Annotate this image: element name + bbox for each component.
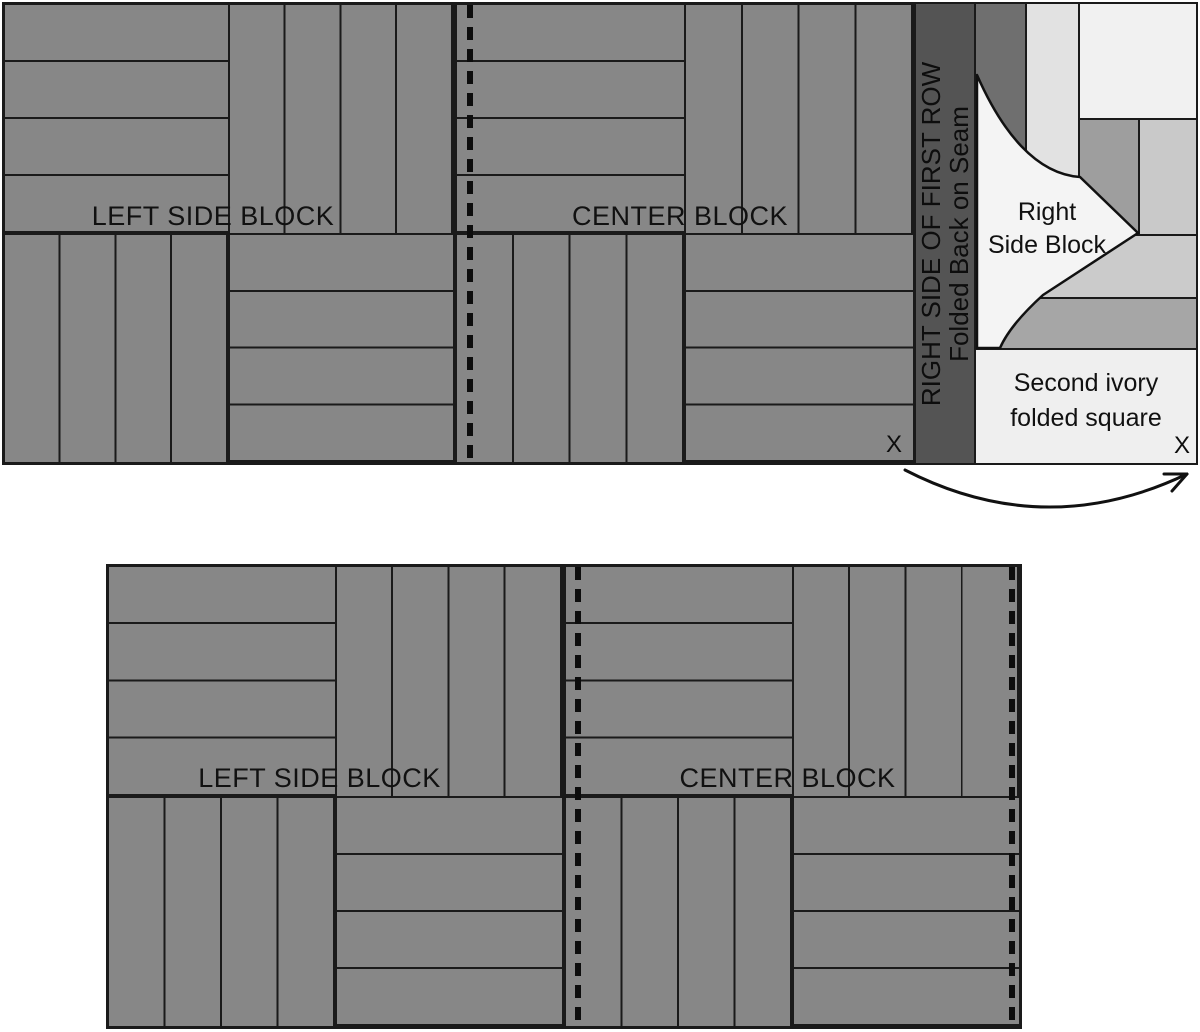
quadrant-vertical-strips [457,235,684,463]
folded-strip-caption: RIGHT SIDE OF FIRST ROW Folded Back on S… [917,61,973,405]
quadrant-vertical-strips [566,798,792,1027]
second-ivory-label-line2: folded square [974,401,1198,436]
bottom-center-block: CENTER BLOCK [563,564,1022,1029]
quadrant-vertical-strips [794,567,1020,796]
block-label: LEFT SIDE BLOCK [198,763,441,794]
quadrant-vertical-strips [337,567,563,796]
second-ivory-square-label: Second ivory folded square [974,366,1198,436]
top-center-block: CENTER BLOCK X [454,2,916,465]
seam-dashed-line-left [575,567,581,1026]
seam-dashed-line [467,5,473,462]
top-left-side-block: LEFT SIDE BLOCK [2,2,456,465]
fold-back-curve [974,2,1198,350]
seam-match-x-mark: X [886,431,902,459]
quadrant-vertical-strips [5,235,228,463]
quadrant-horizontal-strips [5,5,228,233]
seam-dashed-line-right [1009,567,1015,1026]
quadrant-horizontal-strips [566,567,792,796]
block-label: CENTER BLOCK [679,763,895,794]
folded-strip-caption-line1: RIGHT SIDE OF FIRST ROW [917,61,945,405]
quilt-assembly-diagram: LEFT SIDE BLOCK CENTER BLOCK X RIGHT SID… [0,0,1200,1032]
right-side-block-label-line2: Side Block [976,229,1118,262]
fold-target-x-mark: X [1174,432,1190,460]
block-label: CENTER BLOCK [572,201,788,232]
quadrant-vertical-strips [230,5,453,233]
folded-strip-caption-line2: Folded Back on Seam [945,61,973,405]
quadrant-horizontal-strips [230,235,453,463]
quadrant-vertical-strips [109,798,335,1027]
bottom-left-side-block: LEFT SIDE BLOCK [106,564,565,1029]
quadrant-horizontal-strips [794,798,1020,1027]
quadrant-horizontal-strips [109,567,335,796]
quadrant-vertical-strips [686,5,913,233]
fold-direction-arrow [895,460,1200,535]
quadrant-horizontal-strips [457,5,684,233]
right-side-block-label-line1: Right [976,196,1118,229]
block-label: LEFT SIDE BLOCK [92,201,335,232]
quadrant-horizontal-strips [337,798,563,1027]
quadrant-horizontal-strips [686,235,913,463]
right-side-block-label: Right Side Block [976,196,1118,262]
right-side-block-area: Right Side Block Second ivory folded squ… [974,2,1198,465]
folded-first-row-strip: RIGHT SIDE OF FIRST ROW Folded Back on S… [914,2,976,465]
second-ivory-label-line1: Second ivory [974,366,1198,401]
